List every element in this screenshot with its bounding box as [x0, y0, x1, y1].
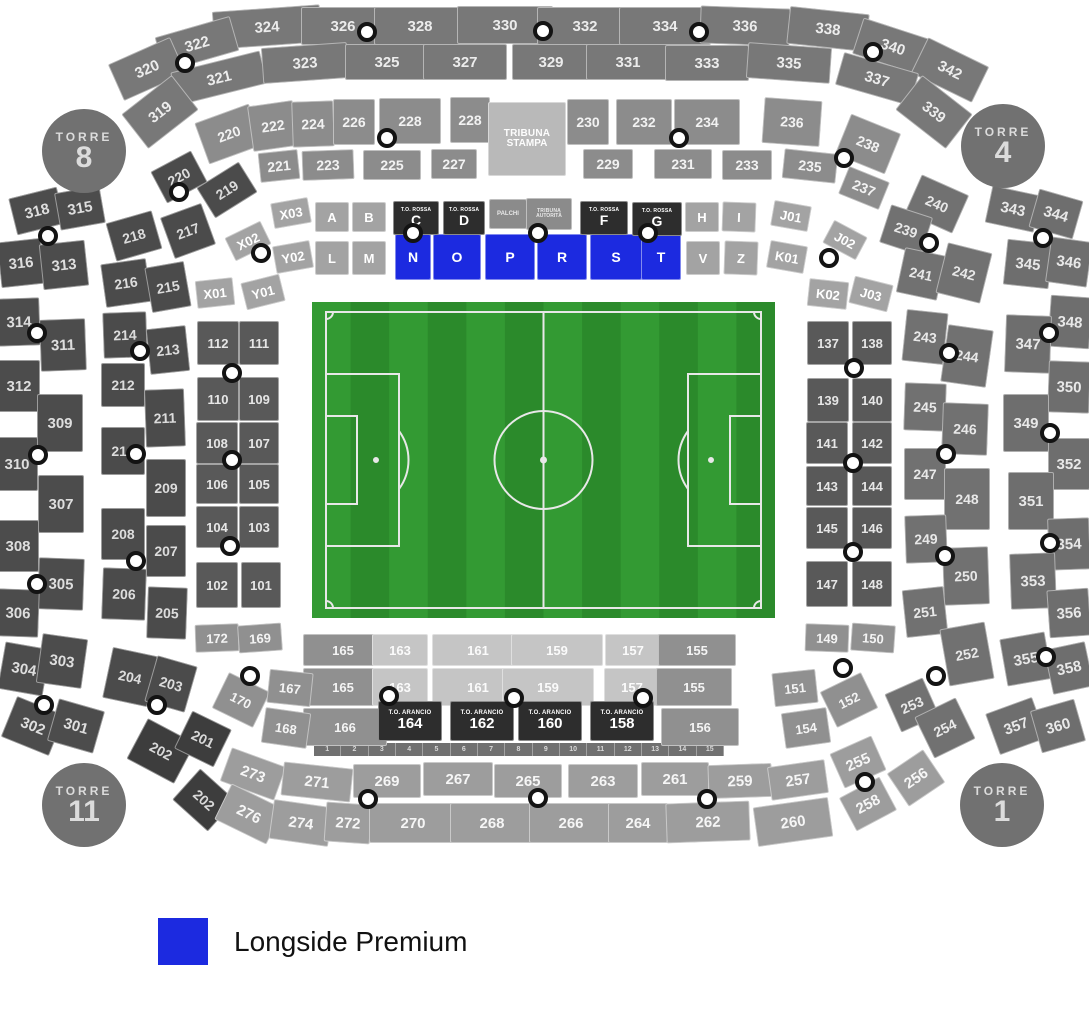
gate-marker-icon — [1039, 323, 1059, 343]
section-224[interactable]: 224 — [291, 100, 335, 147]
section-227[interactable]: 227 — [431, 149, 477, 179]
section-166[interactable]: 166 — [303, 708, 387, 746]
section-252[interactable]: 252 — [939, 621, 994, 686]
section-350[interactable]: 350 — [1047, 360, 1089, 413]
section-346[interactable]: 346 — [1045, 236, 1089, 287]
gate-marker-icon — [358, 789, 378, 809]
gate-marker-icon — [528, 788, 548, 808]
section-H[interactable]: H — [685, 202, 719, 232]
gate-marker-icon — [357, 22, 377, 42]
section-148[interactable]: 148 — [852, 561, 892, 607]
legend-label: Longside Premium — [234, 926, 467, 958]
section-235[interactable]: 235 — [782, 148, 839, 183]
section-168[interactable]: 168 — [261, 707, 312, 749]
section-218[interactable]: 218 — [105, 210, 162, 262]
section-112[interactable]: 112 — [197, 321, 239, 365]
section-152[interactable]: 152 — [820, 672, 879, 728]
section-102[interactable]: 102 — [196, 562, 238, 608]
section-110[interactable]: 110 — [197, 377, 239, 421]
pitch — [312, 302, 775, 618]
section-J03[interactable]: J03 — [848, 276, 894, 313]
section-360[interactable]: 360 — [1030, 699, 1086, 754]
gate-marker-icon — [843, 542, 863, 562]
section-270[interactable]: 270 — [369, 803, 457, 843]
gate-marker-icon — [819, 248, 839, 268]
gate-marker-icon — [863, 42, 883, 62]
gate-marker-icon — [38, 226, 58, 246]
section-144[interactable]: 144 — [852, 466, 892, 506]
gate-marker-icon — [844, 358, 864, 378]
section-261[interactable]: 261 — [641, 762, 709, 796]
section-155[interactable]: 155 — [658, 634, 736, 666]
gate-marker-icon — [251, 243, 271, 263]
section-103[interactable]: 103 — [239, 506, 279, 548]
gate-marker-icon — [936, 444, 956, 464]
section-154[interactable]: 154 — [781, 707, 832, 749]
section-101[interactable]: 101 — [241, 562, 281, 608]
tower-8: TORRE8 — [42, 109, 126, 193]
gate-marker-icon — [1036, 647, 1056, 667]
legend-color-swatch — [158, 918, 208, 965]
section-331[interactable]: 331 — [586, 44, 670, 80]
gate-marker-icon — [1040, 533, 1060, 553]
tower-number: 8 — [76, 144, 93, 172]
section-309[interactable]: 309 — [37, 394, 83, 452]
section-242[interactable]: 242 — [935, 242, 992, 304]
section-217[interactable]: 217 — [160, 203, 216, 259]
section-A[interactable]: A — [315, 202, 349, 232]
gate-marker-icon — [403, 223, 423, 243]
section-207[interactable]: 207 — [146, 525, 186, 577]
section-349[interactable]: 349 — [1003, 394, 1049, 452]
section-169[interactable]: 169 — [237, 622, 283, 653]
section-156[interactable]: 156 — [661, 708, 739, 746]
gate-marker-icon — [126, 551, 146, 571]
section-159[interactable]: 159 — [511, 634, 603, 666]
section-312[interactable]: 312 — [0, 360, 40, 412]
section-164[interactable]: T.O. ARANCIO164 — [378, 701, 442, 741]
section-310[interactable]: 310 — [0, 437, 38, 491]
section-213[interactable]: 213 — [146, 325, 191, 375]
legend: Longside Premium — [158, 918, 467, 965]
section-226[interactable]: 226 — [333, 99, 375, 145]
section-231[interactable]: 231 — [654, 149, 712, 179]
gate-strip-number: 5 — [423, 743, 450, 756]
tower-11: TORRE11 — [42, 763, 126, 847]
section-140[interactable]: 140 — [852, 378, 892, 422]
section-160[interactable]: T.O. ARANCIO160 — [518, 701, 582, 741]
section-I[interactable]: I — [721, 201, 756, 232]
section-M[interactable]: M — [352, 241, 386, 275]
section-X01[interactable]: X01 — [195, 277, 236, 309]
section-title: 162 — [469, 716, 494, 732]
section-233[interactable]: 233 — [722, 150, 772, 180]
section-title: 160 — [537, 716, 562, 732]
gate-strip-number: 10 — [560, 743, 587, 756]
section-PALCHI[interactable]: PALCHI — [489, 199, 527, 229]
section-325[interactable]: 325 — [345, 44, 429, 80]
gate-marker-icon — [220, 536, 240, 556]
gate-strip-number: 9 — [533, 743, 560, 756]
section-F[interactable]: T.O. ROSSAF — [580, 201, 628, 235]
section-151[interactable]: 151 — [771, 669, 818, 707]
gate-strip-number: 8 — [505, 743, 532, 756]
gate-marker-icon — [926, 666, 946, 686]
section-title: F — [600, 213, 609, 228]
section-271[interactable]: 271 — [280, 761, 353, 802]
section-P[interactable]: P — [485, 234, 535, 280]
gate-marker-icon — [504, 688, 524, 708]
section-X03[interactable]: X03 — [270, 197, 312, 229]
gate-marker-icon — [377, 128, 397, 148]
section-137[interactable]: 137 — [807, 321, 849, 365]
section-236[interactable]: 236 — [761, 97, 822, 147]
section-245[interactable]: 245 — [903, 382, 947, 431]
gate-marker-icon — [669, 128, 689, 148]
section-L[interactable]: L — [315, 241, 349, 275]
section-225[interactable]: 225 — [363, 150, 421, 180]
section-O[interactable]: O — [433, 234, 481, 280]
gate-marker-icon — [28, 445, 48, 465]
section-143[interactable]: 143 — [806, 466, 848, 506]
gate-strip-number: 6 — [451, 743, 478, 756]
section-title: D — [459, 213, 469, 228]
section-328[interactable]: 328 — [374, 7, 466, 45]
gate-marker-icon — [528, 223, 548, 243]
gate-strip-number: 7 — [478, 743, 505, 756]
section-221[interactable]: 221 — [258, 149, 301, 183]
section-327[interactable]: 327 — [423, 44, 507, 80]
section-155[interactable]: 155 — [656, 668, 732, 706]
section-228[interactable]: 228 — [450, 97, 490, 143]
section-162[interactable]: T.O. ARANCIO162 — [450, 701, 514, 741]
section-232[interactable]: 232 — [616, 99, 672, 145]
gate-strip-number: 11 — [587, 743, 614, 756]
section-306[interactable]: 306 — [0, 588, 40, 637]
section-209[interactable]: 209 — [146, 459, 186, 517]
section-title: 158 — [609, 716, 634, 732]
section-D[interactable]: T.O. ROSSAD — [443, 201, 485, 235]
section-215[interactable]: 215 — [144, 261, 191, 313]
section-title: AUTORITÀ — [536, 214, 562, 219]
gate-marker-icon — [935, 546, 955, 566]
gate-marker-icon — [919, 233, 939, 253]
pitch-drawing — [312, 302, 775, 618]
section-268[interactable]: 268 — [450, 803, 534, 843]
gate-marker-icon — [147, 695, 167, 715]
section-139[interactable]: 139 — [807, 378, 849, 422]
section-212[interactable]: 212 — [101, 363, 145, 407]
section-109[interactable]: 109 — [239, 377, 279, 421]
gate-marker-icon — [697, 789, 717, 809]
section-329[interactable]: 329 — [512, 44, 590, 80]
section-141[interactable]: 141 — [806, 422, 848, 464]
section-163[interactable]: 163 — [372, 634, 428, 666]
section-R[interactable]: R — [537, 234, 587, 280]
section-147[interactable]: 147 — [806, 561, 848, 607]
section-336[interactable]: 336 — [699, 5, 790, 46]
section-J01[interactable]: J01 — [770, 200, 812, 232]
section-150[interactable]: 150 — [850, 622, 896, 653]
section-title: PALCHI — [497, 211, 519, 217]
section-STAMPA[interactable]: TRIBUNASTAMPA — [488, 102, 566, 176]
gate-marker-icon — [222, 363, 242, 383]
section-165[interactable]: 165 — [303, 634, 383, 666]
section-313[interactable]: 313 — [39, 240, 90, 291]
gate-marker-icon — [240, 666, 260, 686]
section-Z[interactable]: Z — [723, 240, 758, 275]
section-263[interactable]: 263 — [568, 764, 638, 798]
section-230[interactable]: 230 — [567, 99, 609, 145]
section-219[interactable]: 219 — [196, 161, 257, 218]
gate-marker-icon — [1033, 228, 1053, 248]
section-S[interactable]: S — [590, 234, 642, 280]
gate-marker-icon — [126, 444, 146, 464]
gate-marker-icon — [27, 574, 47, 594]
section-206[interactable]: 206 — [101, 567, 147, 621]
section-223[interactable]: 223 — [301, 149, 354, 181]
section-167[interactable]: 167 — [266, 669, 313, 707]
gate-marker-icon — [1040, 423, 1060, 443]
gate-marker-icon — [638, 223, 658, 243]
section-307[interactable]: 307 — [38, 475, 84, 533]
section-165[interactable]: 165 — [303, 668, 383, 706]
gate-marker-icon — [689, 22, 709, 42]
section-248[interactable]: 248 — [944, 468, 990, 530]
gate-marker-icon — [855, 772, 875, 792]
section-229[interactable]: 229 — [583, 149, 633, 179]
section-264[interactable]: 264 — [608, 803, 668, 843]
section-216[interactable]: 216 — [100, 258, 152, 308]
section-259[interactable]: 259 — [707, 763, 772, 799]
section-205[interactable]: 205 — [146, 586, 188, 639]
section-B[interactable]: B — [352, 202, 386, 232]
gate-strip-number: 12 — [615, 743, 642, 756]
section-333[interactable]: 333 — [665, 45, 749, 81]
gate-marker-icon — [843, 453, 863, 473]
section-356[interactable]: 356 — [1046, 588, 1089, 639]
section-303[interactable]: 303 — [36, 633, 89, 689]
section-157[interactable]: 157 — [605, 634, 661, 666]
section-266[interactable]: 266 — [529, 803, 613, 843]
section-106[interactable]: 106 — [196, 464, 238, 504]
tower-1: TORRE1 — [960, 763, 1044, 847]
section-105[interactable]: 105 — [239, 464, 279, 504]
tower-number: 1 — [994, 798, 1011, 826]
gate-marker-icon — [633, 688, 653, 708]
gate-marker-icon — [533, 21, 553, 41]
section-title: STAMPA — [507, 139, 548, 150]
section-311[interactable]: 311 — [39, 318, 87, 372]
section-257[interactable]: 257 — [767, 759, 829, 801]
section-Y01[interactable]: Y01 — [240, 274, 286, 311]
section-172[interactable]: 172 — [195, 623, 240, 653]
section-K01[interactable]: K01 — [766, 240, 808, 274]
gate-marker-icon — [222, 450, 242, 470]
gate-marker-icon — [27, 323, 47, 343]
section-title: 164 — [397, 716, 422, 732]
gate-marker-icon — [130, 341, 150, 361]
section-308[interactable]: 308 — [0, 520, 39, 572]
section-211[interactable]: 211 — [144, 388, 186, 447]
section-323[interactable]: 323 — [261, 42, 349, 84]
gate-marker-icon — [169, 182, 189, 202]
section-149[interactable]: 149 — [805, 623, 850, 653]
tower-number: 11 — [68, 798, 100, 826]
tower-4: TORRE4 — [961, 104, 1045, 188]
section-Y02[interactable]: Y02 — [272, 240, 314, 274]
section-V[interactable]: V — [686, 241, 720, 275]
section-260[interactable]: 260 — [753, 797, 834, 847]
section-267[interactable]: 267 — [423, 762, 493, 796]
section-K02[interactable]: K02 — [807, 278, 850, 310]
gate-marker-icon — [34, 695, 54, 715]
section-107[interactable]: 107 — [239, 422, 279, 464]
section-256[interactable]: 256 — [887, 749, 946, 807]
gate-marker-icon — [175, 53, 195, 73]
gate-marker-icon — [379, 686, 399, 706]
stadium-seating-map: 123456789101112131415 Longside Premium 3… — [0, 0, 1089, 1032]
gate-marker-icon — [834, 148, 854, 168]
section-301[interactable]: 301 — [47, 698, 105, 754]
section-145[interactable]: 145 — [806, 507, 848, 549]
section-111[interactable]: 111 — [239, 321, 279, 365]
gate-marker-icon — [939, 343, 959, 363]
section-335[interactable]: 335 — [746, 42, 832, 84]
gate-marker-icon — [833, 658, 853, 678]
gate-strip-number: 4 — [396, 743, 423, 756]
section-352[interactable]: 352 — [1048, 438, 1089, 490]
tower-number: 4 — [995, 139, 1012, 167]
